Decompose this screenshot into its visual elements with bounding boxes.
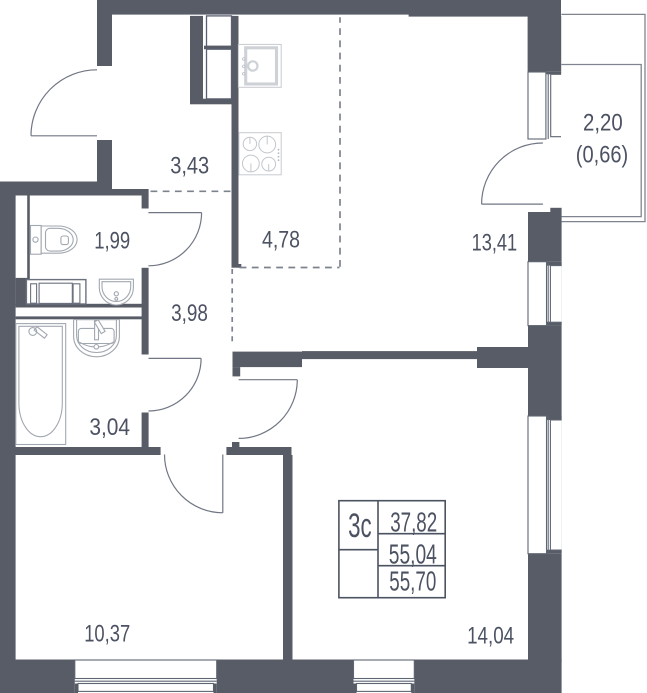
svg-text:3с: 3с <box>348 507 372 545</box>
svg-text:13,41: 13,41 <box>472 230 518 257</box>
svg-text:37,82: 37,82 <box>390 507 437 538</box>
svg-text:14,04: 14,04 <box>467 623 514 650</box>
svg-text:3,43: 3,43 <box>170 153 209 180</box>
svg-text:10,37: 10,37 <box>84 621 130 648</box>
svg-text:(0,66): (0,66) <box>576 142 628 169</box>
svg-text:55,70: 55,70 <box>389 566 436 597</box>
svg-text:2,20: 2,20 <box>583 110 623 137</box>
svg-text:3,04: 3,04 <box>89 414 130 441</box>
svg-text:3,98: 3,98 <box>171 300 208 327</box>
svg-text:4,78: 4,78 <box>262 227 300 254</box>
svg-text:1,99: 1,99 <box>94 228 130 255</box>
